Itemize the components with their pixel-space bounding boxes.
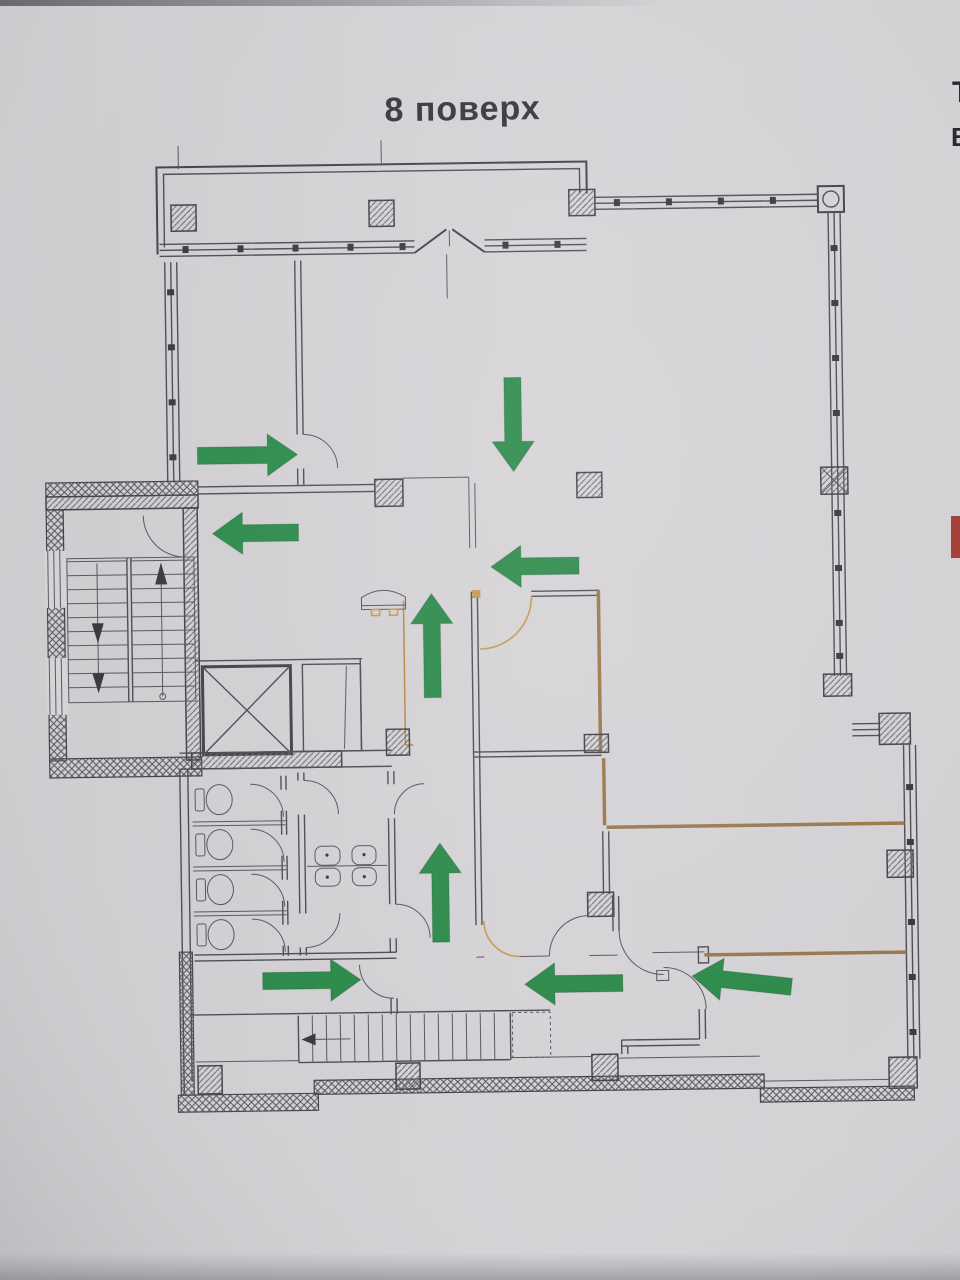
column bbox=[592, 1054, 618, 1080]
column bbox=[588, 892, 614, 916]
column bbox=[887, 850, 913, 877]
column bbox=[171, 205, 196, 231]
column bbox=[396, 1063, 420, 1089]
edge-text-fragment: В bbox=[951, 122, 960, 152]
floor-title: 8 поверх bbox=[384, 89, 541, 129]
column bbox=[198, 1066, 222, 1094]
column bbox=[569, 189, 595, 215]
column bbox=[879, 713, 910, 744]
column bbox=[584, 734, 608, 752]
red-edge-marker bbox=[951, 516, 960, 558]
floorplan-photo: 8 поверх bbox=[0, 0, 960, 1280]
edge-text-fragment: Т bbox=[952, 76, 960, 109]
column bbox=[386, 729, 409, 755]
column bbox=[375, 479, 403, 506]
column bbox=[824, 674, 852, 696]
column bbox=[369, 200, 394, 226]
hall-column bbox=[577, 472, 602, 497]
column bbox=[889, 1057, 917, 1088]
